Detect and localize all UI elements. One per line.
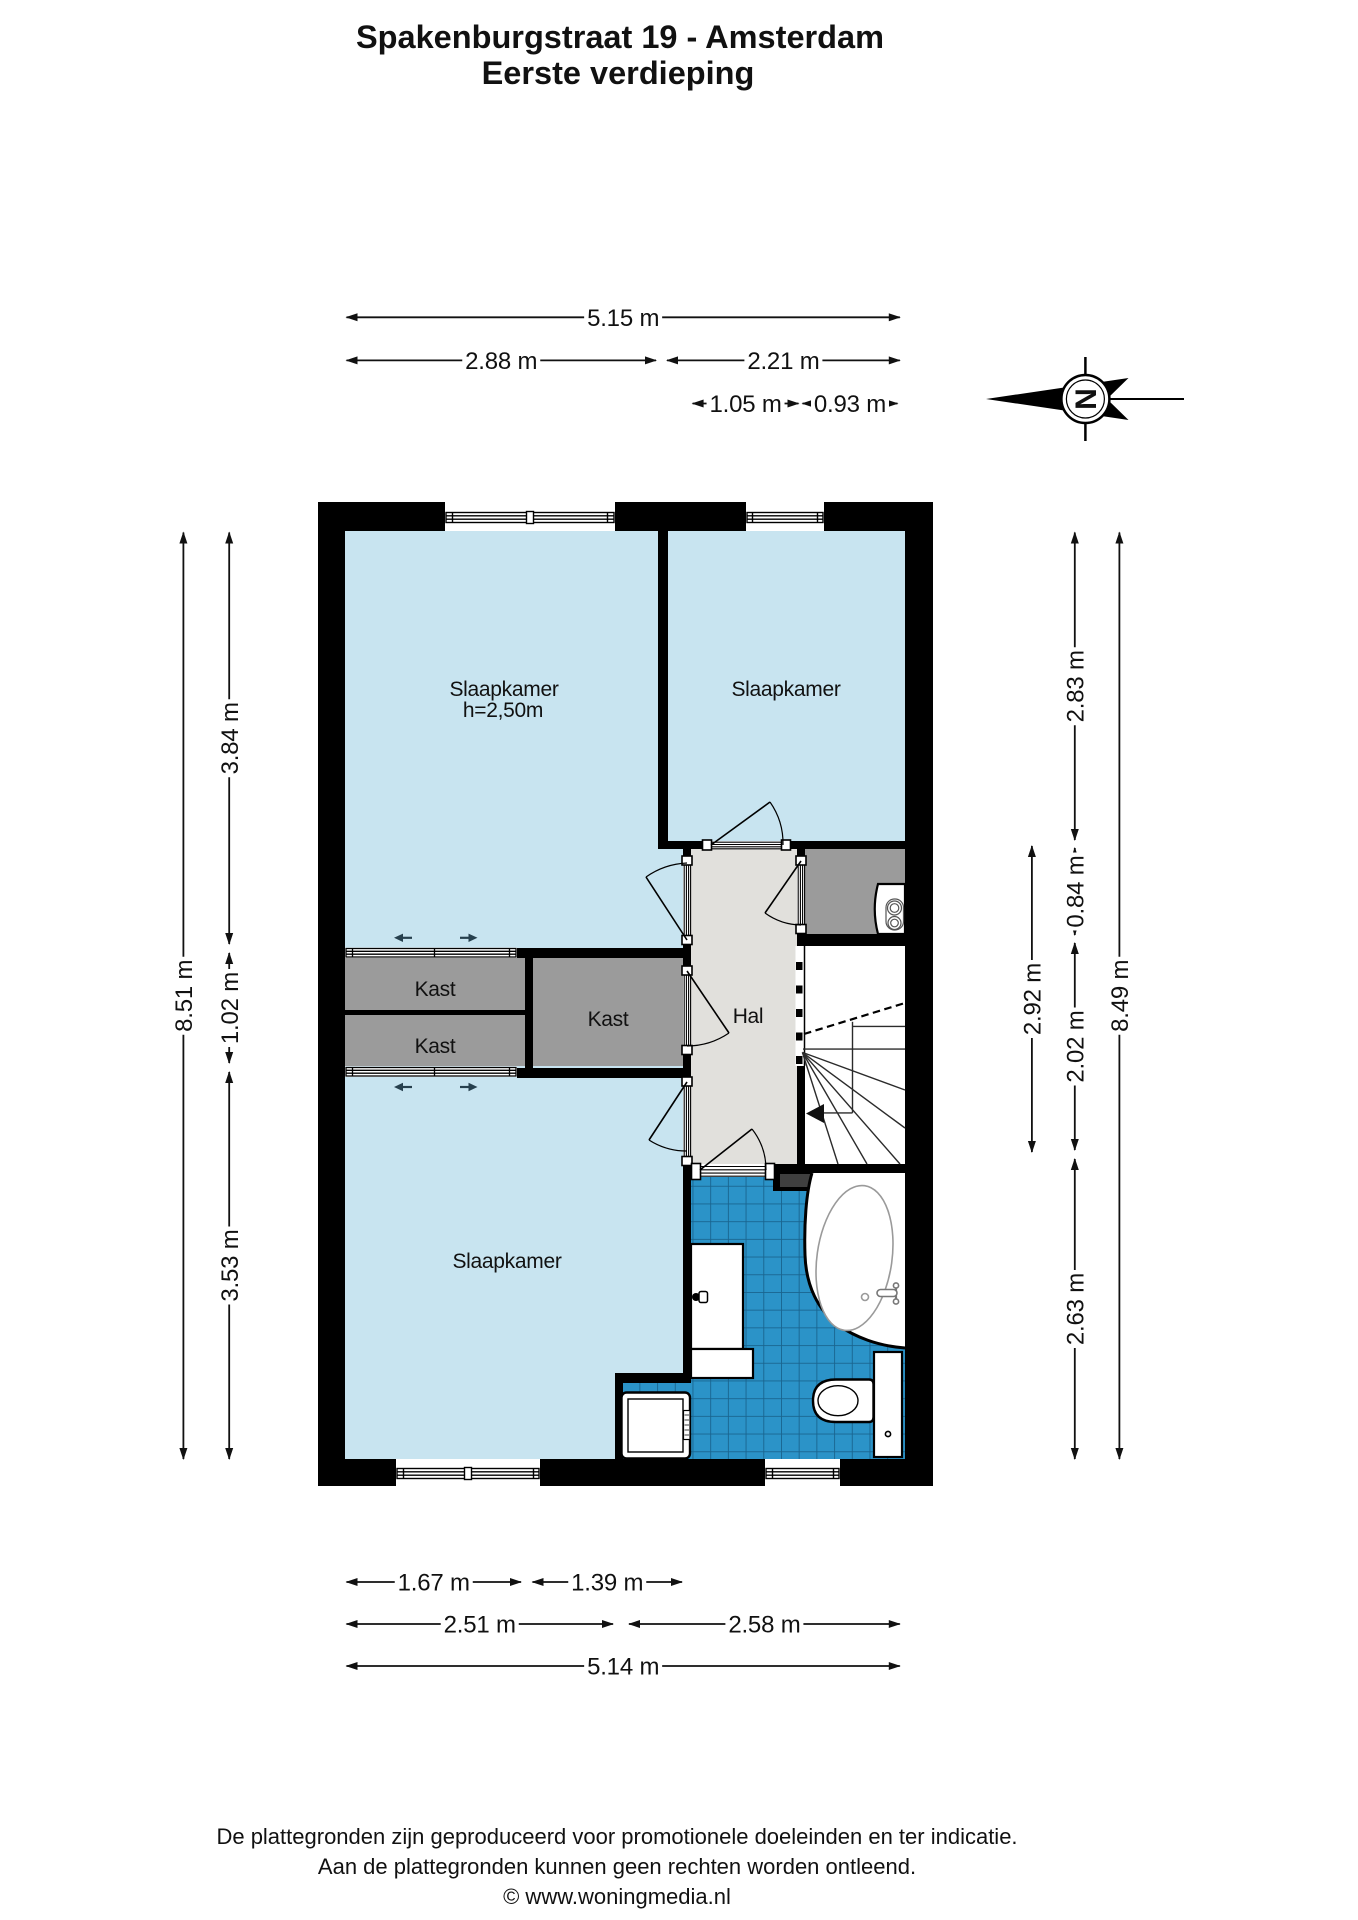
svg-text:Kast: Kast [415,978,456,1001]
svg-text:0.84 m: 0.84 m [1063,855,1090,927]
svg-text:1.67 m: 1.67 m [398,1570,470,1597]
svg-text:2.83 m: 2.83 m [1063,650,1090,722]
svg-text:1.05 m: 1.05 m [709,391,781,418]
svg-text:8.49 m: 8.49 m [1107,960,1134,1032]
svg-text:1.39 m: 1.39 m [571,1570,643,1597]
svg-text:2.58 m: 2.58 m [728,1612,800,1639]
svg-text:Kast: Kast [588,1008,629,1031]
svg-text:2.21 m: 2.21 m [747,348,819,375]
svg-text:Eerste verdieping: Eerste verdieping [482,55,755,91]
svg-text:Slaapkamer: Slaapkamer [449,678,558,701]
svg-text:Kast: Kast [415,1035,456,1058]
svg-text:2.51 m: 2.51 m [444,1612,516,1639]
svg-text:2.63 m: 2.63 m [1063,1273,1090,1345]
svg-text:3.53 m: 3.53 m [217,1229,244,1301]
svg-text:2.02 m: 2.02 m [1063,1010,1090,1082]
svg-text:8.51 m: 8.51 m [171,960,198,1032]
svg-text:© www.woningmedia.nl: © www.woningmedia.nl [503,1884,731,1909]
svg-text:Hal: Hal [733,1005,764,1028]
svg-text:5.15 m: 5.15 m [587,305,659,332]
svg-text:Aan de plattegronden kunnen ge: Aan de plattegronden kunnen geen rechten… [318,1854,916,1879]
svg-text:h=2,50m: h=2,50m [463,699,543,722]
svg-text:1.02 m: 1.02 m [217,972,244,1044]
svg-text:Slaapkamer: Slaapkamer [452,1250,561,1273]
svg-text:2.92 m: 2.92 m [1020,963,1047,1035]
svg-text:Spakenburgstraat 19 - Amsterda: Spakenburgstraat 19 - Amsterdam [356,19,884,55]
svg-text:Slaapkamer: Slaapkamer [731,678,840,701]
svg-text:N: N [1070,388,1103,410]
svg-text:De plattegronden zijn geproduc: De plattegronden zijn geproduceerd voor … [216,1824,1017,1849]
svg-text:2.88 m: 2.88 m [465,348,537,375]
svg-text:3.84 m: 3.84 m [217,702,244,774]
svg-text:0.93 m: 0.93 m [814,391,886,418]
svg-text:5.14 m: 5.14 m [587,1654,659,1681]
